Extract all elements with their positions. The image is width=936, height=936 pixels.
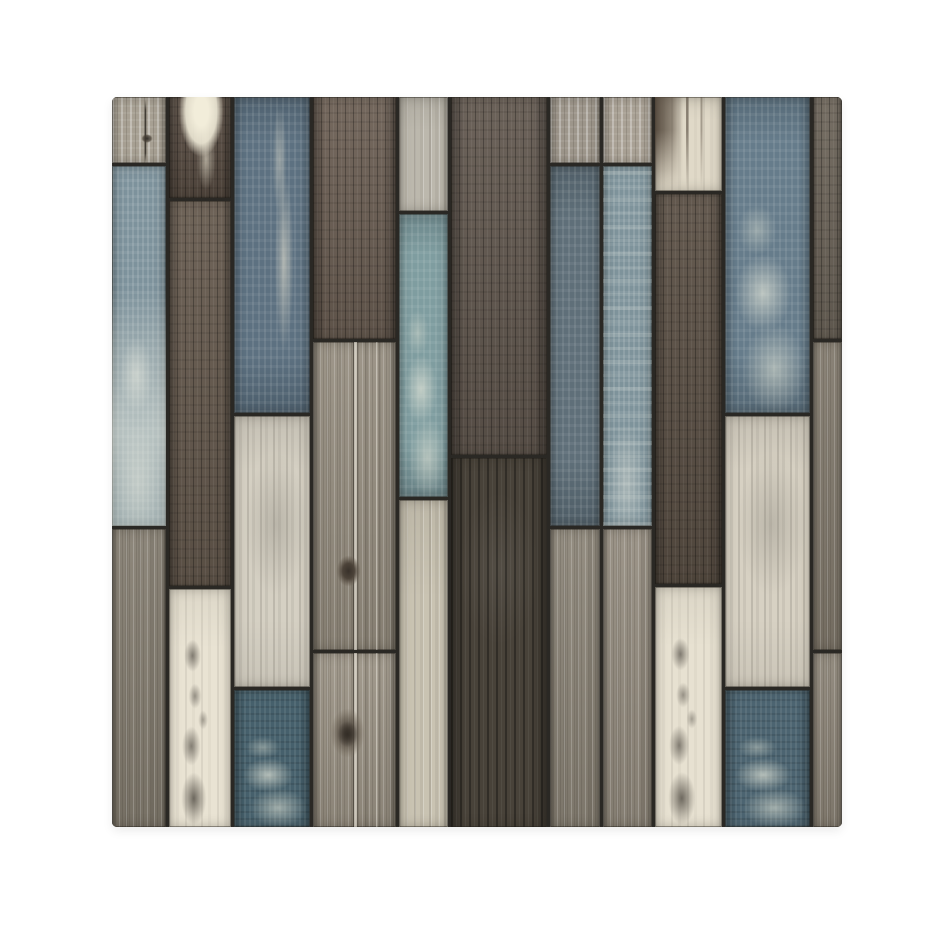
- wood-plank: [451, 97, 547, 455]
- wood-plank: [112, 97, 166, 163]
- image-background: [0, 0, 936, 936]
- wood-plank: [234, 416, 310, 687]
- wood-plank: [603, 97, 652, 163]
- wood-plank: [603, 529, 652, 827]
- wood-plank: [550, 97, 600, 163]
- wood-plank: [813, 653, 842, 827]
- wood-plank: [655, 194, 722, 584]
- wood-plank: [725, 690, 810, 827]
- wood-plank: [655, 97, 722, 191]
- wood-plank: [169, 201, 231, 586]
- wood-plank: [112, 166, 166, 526]
- wood-plank: [234, 97, 310, 413]
- wood-plank: [169, 589, 231, 827]
- wood-plank: [313, 342, 396, 650]
- wood-plank: [550, 529, 600, 827]
- wood-plank: [313, 97, 396, 339]
- wood-plank: [169, 97, 231, 198]
- wood-plank: [112, 529, 166, 827]
- wood-plank: [725, 416, 810, 687]
- wood-plank: [550, 166, 600, 526]
- wood-plank: [399, 97, 448, 211]
- wood-plank: [399, 500, 448, 827]
- wood-plank: [234, 690, 310, 827]
- wood-plank: [451, 458, 547, 827]
- wood-plank: [399, 214, 448, 497]
- wood-plank: [313, 653, 396, 827]
- wood-plank: [725, 97, 810, 413]
- wood-plank: [813, 342, 842, 650]
- wood-plank: [813, 97, 842, 339]
- wood-plank: [655, 587, 722, 827]
- wood-plank: [603, 166, 652, 526]
- wood-panel: [112, 97, 842, 827]
